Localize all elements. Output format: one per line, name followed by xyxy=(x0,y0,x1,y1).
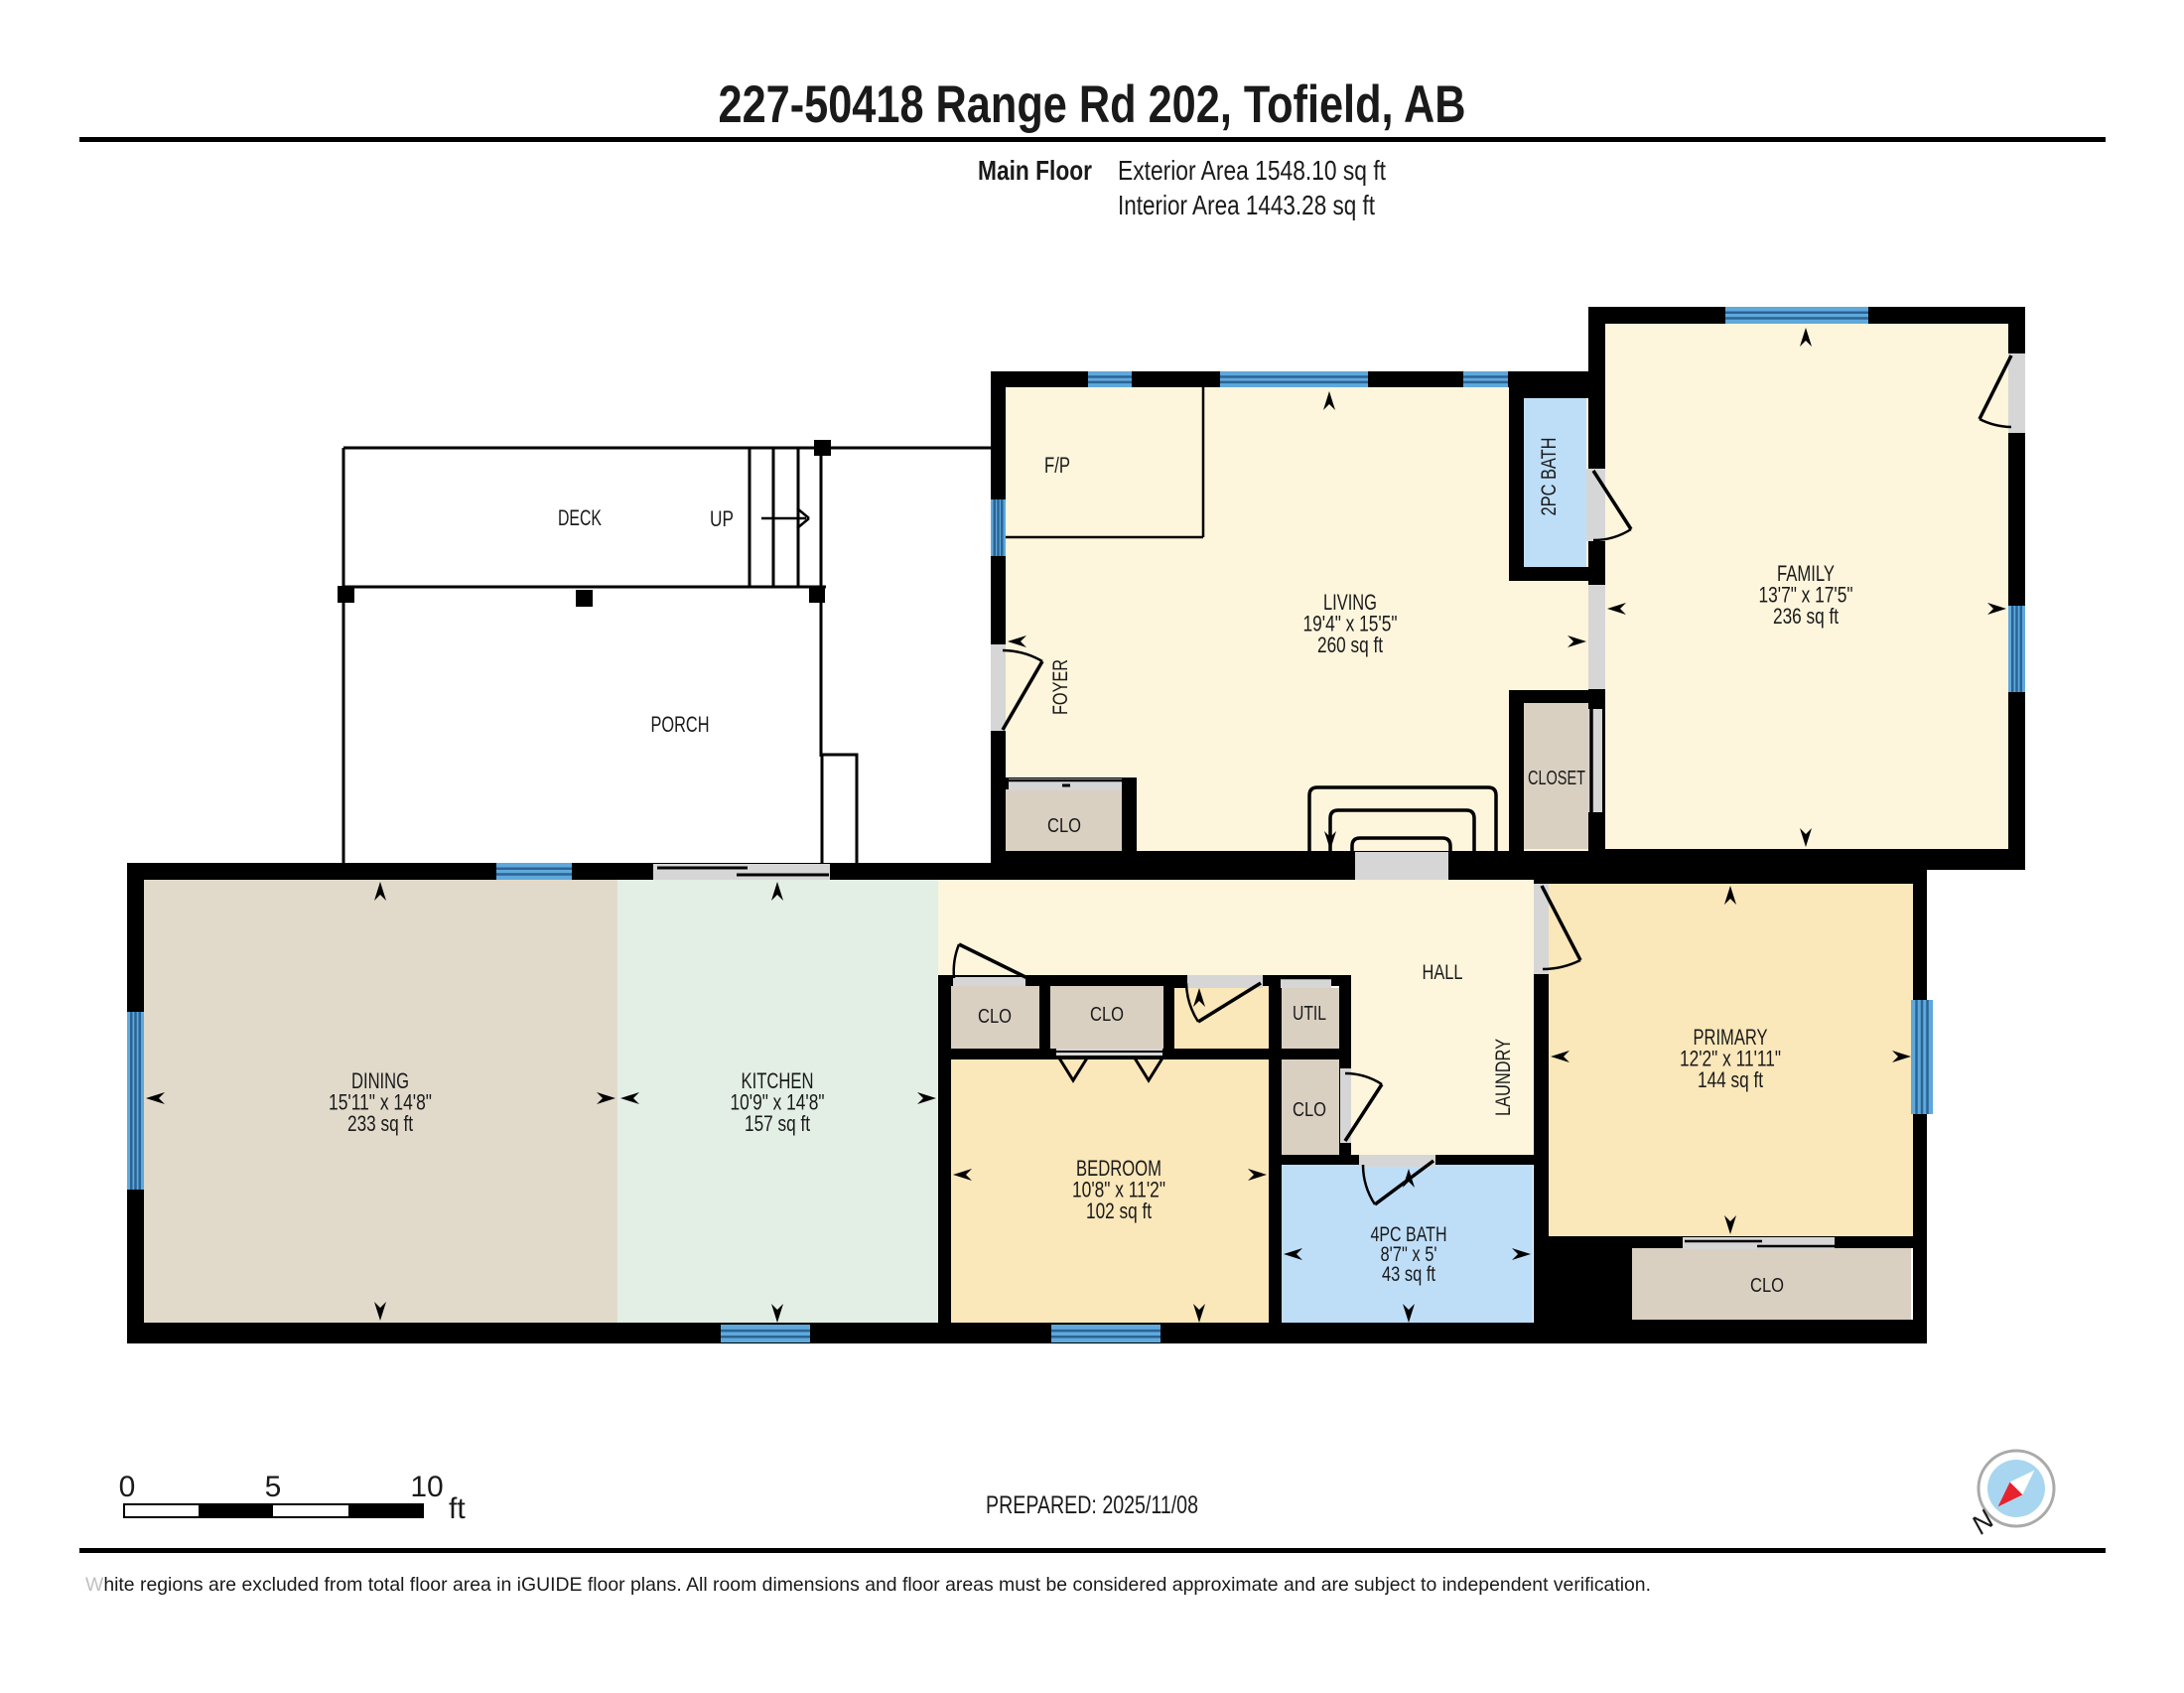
svg-text:UTIL: UTIL xyxy=(1293,1003,1326,1025)
svg-text:CLOSET: CLOSET xyxy=(1528,768,1585,789)
svg-text:FOYER: FOYER xyxy=(1049,659,1072,715)
svg-text:Exterior Area 1548.10 sq ft: Exterior Area 1548.10 sq ft xyxy=(1118,155,1386,186)
svg-text:CLO: CLO xyxy=(1047,815,1081,837)
svg-text:102 sq ft: 102 sq ft xyxy=(1086,1199,1152,1223)
svg-text:CLO: CLO xyxy=(1750,1275,1784,1297)
svg-text:0: 0 xyxy=(119,1471,136,1503)
svg-text:5: 5 xyxy=(265,1471,282,1503)
svg-text:UP: UP xyxy=(710,506,734,531)
svg-text:HALL: HALL xyxy=(1423,961,1463,984)
svg-text:260 sq ft: 260 sq ft xyxy=(1317,633,1383,657)
svg-text:236 sq ft: 236 sq ft xyxy=(1773,604,1839,629)
svg-text:157 sq ft: 157 sq ft xyxy=(745,1111,810,1136)
svg-text:227-50418 Range Rd 202, Tofiel: 227-50418 Range Rd 202, Tofield, AB xyxy=(719,75,1466,134)
svg-text:10: 10 xyxy=(410,1471,443,1503)
svg-text:2PC BATH: 2PC BATH xyxy=(1538,438,1561,516)
svg-text:PORCH: PORCH xyxy=(651,712,710,737)
svg-text:CLO: CLO xyxy=(1090,1004,1124,1026)
svg-text:LAUNDRY: LAUNDRY xyxy=(1492,1039,1515,1116)
svg-text:233 sq ft: 233 sq ft xyxy=(347,1111,413,1136)
svg-text:F/P: F/P xyxy=(1044,453,1070,478)
svg-text:DECK: DECK xyxy=(558,505,602,530)
svg-text:CLO: CLO xyxy=(1293,1099,1326,1121)
svg-text:PREPARED: 2025/11/08: PREPARED: 2025/11/08 xyxy=(986,1491,1198,1519)
svg-text:White regions are excluded fro: White regions are excluded from total fl… xyxy=(85,1574,1651,1596)
svg-text:ft: ft xyxy=(449,1492,466,1525)
svg-text:43 sq ft: 43 sq ft xyxy=(1382,1263,1435,1286)
svg-text:Interior Area 1443.28 sq ft: Interior Area 1443.28 sq ft xyxy=(1118,190,1375,220)
svg-text:Main Floor: Main Floor xyxy=(978,155,1092,186)
svg-text:144 sq ft: 144 sq ft xyxy=(1698,1067,1763,1092)
svg-text:CLO: CLO xyxy=(978,1006,1012,1028)
